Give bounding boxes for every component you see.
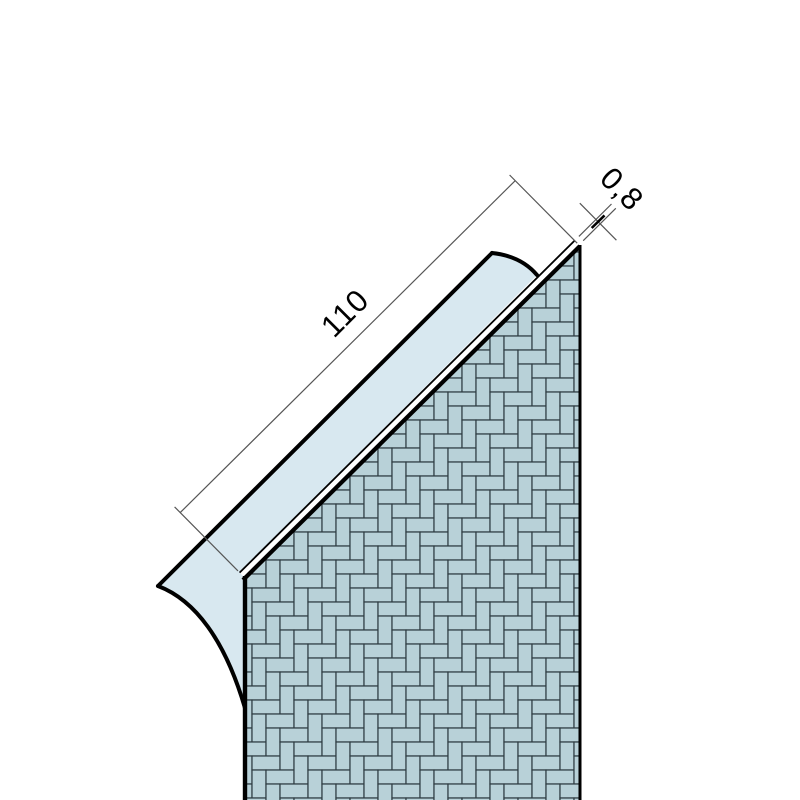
dimension-label-0-8: 0,8	[593, 160, 650, 217]
dimension-label-110: 110	[314, 282, 376, 344]
drawing-canvas: 110 0,8	[0, 0, 800, 800]
extension-line-inner-surface	[583, 208, 616, 240]
extension-line-upper	[510, 175, 578, 243]
extension-line-outer-surface	[579, 204, 612, 236]
dimension-0-8: 0,8	[579, 160, 651, 240]
technical-drawing: 110 0,8	[0, 0, 800, 800]
